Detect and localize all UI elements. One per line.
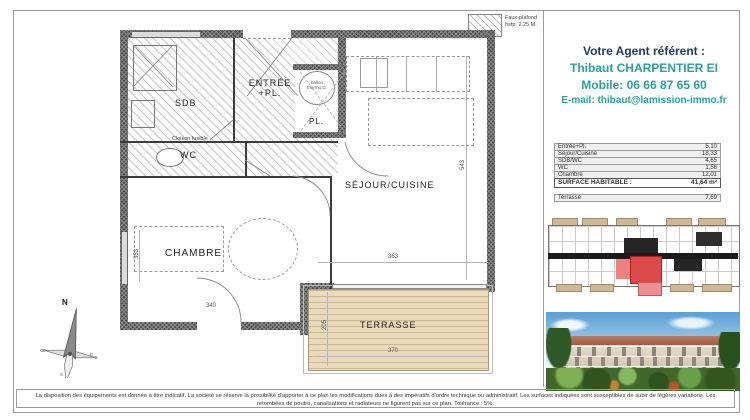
highlighted-unit: [630, 256, 662, 284]
dimline-363: [318, 262, 488, 263]
room-label-terrasse: TERRASSE: [360, 320, 417, 330]
floorplan-sheet: Faux-plafond hsfp: 2.25 M. ballon thermo…: [0, 0, 750, 420]
agent-mobile: Mobile: 06 66 87 65 60: [543, 78, 745, 92]
dim-353: 353: [134, 249, 140, 259]
cloison-fusible-label: Cloison fusible: [172, 136, 208, 142]
dim-363: 363: [388, 254, 398, 260]
agent-email-link[interactable]: E-mail: thibaut@lamission-immo.fr: [543, 95, 745, 106]
terrace-label: Terrasse: [558, 195, 581, 201]
dim-370: 370: [388, 348, 398, 354]
row-label: Entrée+Pl.: [558, 144, 586, 150]
keyplan-balcony: [670, 284, 694, 292]
compass-south-label: S: [60, 372, 63, 377]
room-label-chambre: CHAMBRE: [165, 248, 222, 259]
agent-name: Thibaut CHARPENTIER EI: [543, 61, 745, 75]
photo-floor-band: [562, 346, 726, 356]
row-value: 1,56: [705, 165, 717, 171]
total-value: 41,64 m²: [691, 179, 717, 187]
room-label-entree: ENTRÉE +PL.: [247, 78, 293, 98]
agent-title: Votre Agent référent :: [543, 44, 745, 58]
dimline-370: [315, 356, 487, 357]
room-label-sdb: SDB: [175, 98, 197, 108]
door-swing-arcs: [113, 28, 503, 378]
keyplan-core-block: [624, 238, 658, 253]
highlighted-unit-room: [616, 259, 630, 279]
row-label: Séjour/Cuisine: [558, 151, 597, 157]
row-value: 18,33: [702, 151, 717, 157]
photo-garden: [546, 368, 740, 391]
row-value: 4,65: [705, 158, 717, 164]
table-row-terrace: Terrasse 7,69: [554, 194, 721, 202]
room-label-wc: WC: [180, 150, 197, 160]
keyplan-core-block: [674, 259, 702, 271]
dim-543: 543: [460, 160, 466, 170]
table-row-total: SURFACE HABITABLE : 41,64 m²: [554, 178, 721, 188]
agent-contact-block: Votre Agent référent : Thibaut CHARPENTI…: [543, 44, 745, 106]
row-value: 5,10: [705, 144, 717, 150]
highlighted-unit-terrace: [638, 282, 662, 296]
room-label-pl: PL.: [309, 117, 324, 126]
faux-plafond-legend-label: Faux-plafond hsfp: 2.25 M.: [505, 15, 537, 29]
row-label: Chambre: [558, 172, 583, 178]
compass-west-label: O: [40, 348, 44, 353]
disclaimer-text: La disposition des équipements est donné…: [16, 389, 735, 408]
photo-floor-band: [562, 356, 726, 366]
keyplan-core-block: [696, 232, 722, 246]
terrace-value: 7,69: [705, 195, 717, 201]
legend-line1: Faux-plafond: [505, 15, 537, 22]
surface-table: Entrée+Pl. 5,10 Séjour/Cuisine 18,33 SDB…: [554, 144, 721, 202]
room-label-entree-line1: ENTRÉE: [247, 78, 293, 88]
dimline-543: [466, 60, 467, 280]
floor-key-plan: [546, 212, 740, 302]
dim-205: 205: [322, 320, 328, 330]
building-photo: [546, 312, 740, 391]
legend-line2: hsfp: 2.25 M.: [505, 22, 537, 29]
keyplan-balcony: [556, 284, 582, 292]
keyplan-balcony: [590, 284, 614, 292]
total-label: SURFACE HABITABLE :: [558, 179, 632, 187]
compass-rose-icon: [40, 306, 100, 378]
row-value: 12,01: [702, 172, 717, 178]
compass-east-label: E: [90, 352, 93, 357]
room-label-entree-line2: +PL.: [247, 88, 293, 98]
row-label: SDB/WC: [558, 158, 582, 164]
room-label-sejour: SÉJOUR/CUISINE: [345, 180, 435, 190]
row-label: WC: [558, 165, 568, 171]
dim-340: 340: [206, 303, 216, 309]
photo-cloud: [666, 316, 716, 330]
keyplan-balcony: [702, 284, 732, 292]
